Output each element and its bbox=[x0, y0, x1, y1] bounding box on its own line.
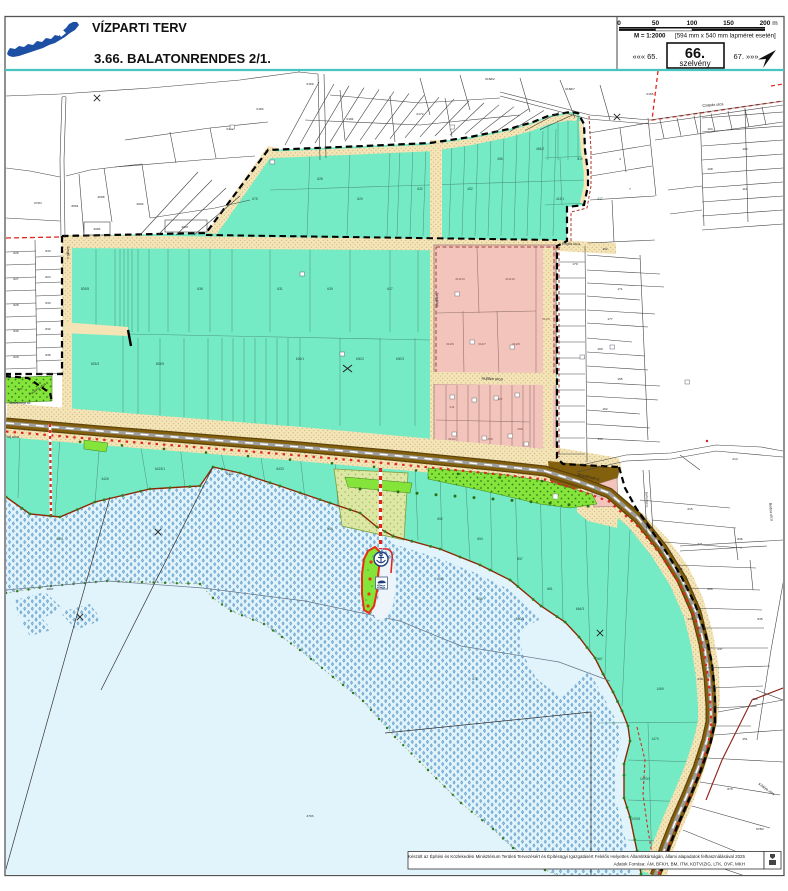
svg-text:298: 298 bbox=[487, 437, 492, 441]
svg-text:Adatok Forrása: ÁM, BFKH, BM,: Adatok Forrása: ÁM, BFKH, BM, ITM, KDTVI… bbox=[614, 861, 745, 867]
svg-text:650: 650 bbox=[437, 577, 443, 581]
svg-text:256: 256 bbox=[697, 757, 702, 761]
svg-text:626/1: 626/1 bbox=[296, 357, 304, 361]
svg-text:312/6: 312/6 bbox=[446, 342, 454, 346]
svg-text:312/2: 312/2 bbox=[448, 437, 456, 441]
svg-text:110: 110 bbox=[743, 187, 748, 191]
svg-text:675: 675 bbox=[252, 197, 258, 201]
svg-text:627: 627 bbox=[387, 287, 393, 291]
svg-text:631: 631 bbox=[277, 287, 283, 291]
svg-text:2098: 2098 bbox=[98, 195, 105, 199]
svg-text:VÍZPARTI TERV: VÍZPARTI TERV bbox=[92, 20, 187, 35]
svg-text:Balatonyi út: Balatonyi út bbox=[10, 400, 32, 405]
svg-text:150: 150 bbox=[723, 20, 734, 27]
svg-text:312/10: 312/10 bbox=[505, 277, 515, 281]
svg-text:661: 661 bbox=[547, 587, 553, 591]
svg-text:szelvény: szelvény bbox=[679, 59, 710, 68]
svg-text:652: 652 bbox=[437, 517, 443, 521]
svg-text:803/3: 803/3 bbox=[91, 362, 99, 366]
svg-text:837: 837 bbox=[17, 387, 22, 391]
svg-text:830: 830 bbox=[13, 329, 18, 333]
svg-text:639: 639 bbox=[327, 287, 333, 291]
svg-text:413/1: 413/1 bbox=[556, 197, 564, 201]
svg-text:803/5: 803/5 bbox=[81, 287, 89, 291]
svg-text:846: 846 bbox=[737, 537, 742, 541]
svg-text:100: 100 bbox=[687, 20, 698, 27]
svg-text:312/8: 312/8 bbox=[512, 342, 520, 346]
svg-text:1470: 1470 bbox=[651, 737, 659, 741]
svg-text:836: 836 bbox=[45, 353, 50, 357]
svg-text:165: 165 bbox=[617, 377, 622, 381]
svg-text:638: 638 bbox=[197, 287, 203, 291]
svg-text:1470/5: 1470/5 bbox=[630, 817, 640, 821]
svg-text:0184: 0184 bbox=[347, 117, 354, 121]
svg-text:312/7: 312/7 bbox=[478, 342, 486, 346]
svg-text:67. »»»: 67. »»» bbox=[733, 52, 758, 61]
svg-text:0168/2: 0168/2 bbox=[485, 77, 495, 81]
svg-text:Szépkilátó: Szépkilátó bbox=[435, 293, 439, 308]
svg-text:878/2: 878/2 bbox=[756, 827, 764, 831]
svg-text:657: 657 bbox=[517, 557, 523, 561]
svg-text:Készült az Építési és Közleked: Készült az Építési és Közlekedési Minisz… bbox=[408, 853, 746, 859]
svg-text:0168/7: 0168/7 bbox=[565, 87, 575, 91]
svg-text:845: 845 bbox=[757, 617, 762, 621]
svg-text:454/2: 454/2 bbox=[536, 147, 544, 151]
svg-text:620: 620 bbox=[357, 197, 363, 201]
svg-text:200: 200 bbox=[760, 20, 771, 27]
svg-text:656: 656 bbox=[477, 597, 483, 601]
svg-text:1470/3: 1470/3 bbox=[640, 777, 650, 781]
svg-text:248: 248 bbox=[697, 677, 702, 681]
svg-text:0: 0 bbox=[617, 20, 621, 27]
svg-text:6423/1: 6423/1 bbox=[155, 467, 165, 471]
svg-text:215: 215 bbox=[687, 507, 692, 511]
svg-text:829: 829 bbox=[13, 355, 18, 359]
svg-text:214: 214 bbox=[732, 457, 737, 461]
svg-text:826: 826 bbox=[13, 251, 18, 255]
svg-text:456: 456 bbox=[497, 157, 503, 161]
svg-text:667: 667 bbox=[597, 657, 603, 661]
svg-text:4697: 4697 bbox=[47, 587, 54, 591]
svg-text:0169: 0169 bbox=[307, 82, 314, 86]
svg-text:[594 mm x 540 mm lapméret eset: [594 mm x 540 mm lapméret esetén] bbox=[675, 33, 776, 40]
svg-text:171: 171 bbox=[617, 287, 622, 291]
svg-text:879: 879 bbox=[727, 787, 732, 791]
svg-text:311: 311 bbox=[450, 405, 455, 409]
svg-text:843: 843 bbox=[45, 249, 50, 253]
svg-text:251: 251 bbox=[742, 737, 747, 741]
svg-text:Hullám utca: Hullám utca bbox=[481, 376, 503, 382]
svg-text:824: 824 bbox=[45, 275, 50, 279]
svg-text:160: 160 bbox=[597, 347, 602, 351]
svg-text:Szegfű u.: Szegfű u. bbox=[66, 246, 70, 260]
svg-text:671: 671 bbox=[472, 677, 478, 681]
svg-text:Regős utca: Regős utca bbox=[562, 242, 580, 246]
svg-text:7: 7 bbox=[629, 187, 631, 191]
svg-text:828: 828 bbox=[13, 303, 18, 307]
svg-text:630/2: 630/2 bbox=[356, 357, 364, 361]
svg-text:664/3: 664/3 bbox=[576, 607, 584, 611]
svg-text:4426: 4426 bbox=[101, 477, 109, 481]
svg-text:50: 50 bbox=[652, 20, 660, 27]
svg-text:2097: 2097 bbox=[182, 225, 189, 229]
svg-text:0166: 0166 bbox=[647, 92, 654, 96]
svg-text:6491: 6491 bbox=[56, 537, 64, 541]
svg-text:Fürj utca: Fürj utca bbox=[5, 435, 19, 439]
svg-text:0172: 0172 bbox=[417, 112, 424, 116]
svg-text:452: 452 bbox=[467, 187, 473, 191]
svg-text:106: 106 bbox=[742, 147, 747, 151]
svg-text:296: 296 bbox=[517, 427, 522, 431]
svg-text:646: 646 bbox=[327, 527, 333, 531]
svg-text:m: m bbox=[772, 20, 777, 27]
svg-text:225: 225 bbox=[677, 567, 682, 571]
svg-text:307: 307 bbox=[497, 397, 502, 401]
svg-text:417: 417 bbox=[597, 197, 603, 201]
svg-text:104: 104 bbox=[707, 127, 712, 131]
svg-text:177: 177 bbox=[607, 317, 612, 321]
svg-text:312/13: 312/13 bbox=[455, 277, 465, 281]
svg-text:4: 4 bbox=[619, 157, 621, 161]
svg-text:833: 833 bbox=[45, 301, 50, 305]
svg-text:134: 134 bbox=[597, 437, 602, 441]
svg-text:419: 419 bbox=[577, 157, 583, 161]
svg-text:654: 654 bbox=[477, 537, 483, 541]
svg-text:4703: 4703 bbox=[307, 814, 314, 818]
svg-text:««« 65.: ««« 65. bbox=[632, 52, 657, 61]
svg-text:632: 632 bbox=[417, 187, 423, 191]
svg-text:6433: 6433 bbox=[276, 467, 284, 471]
svg-text:1469: 1469 bbox=[656, 687, 664, 691]
svg-text:2084: 2084 bbox=[94, 227, 101, 231]
svg-text:247: 247 bbox=[717, 647, 722, 651]
svg-text:312/9: 312/9 bbox=[542, 317, 550, 321]
svg-text:827: 827 bbox=[13, 277, 18, 281]
svg-text:803/9: 803/9 bbox=[156, 362, 164, 366]
svg-text:6431: 6431 bbox=[226, 472, 234, 476]
svg-text:152: 152 bbox=[602, 247, 607, 251]
svg-text:630/3: 630/3 bbox=[396, 357, 404, 361]
svg-text:108: 108 bbox=[707, 167, 712, 171]
svg-text:M = 1:2000: M = 1:2000 bbox=[634, 33, 666, 40]
svg-text:628: 628 bbox=[317, 177, 323, 181]
svg-text:8081: 8081 bbox=[72, 204, 79, 208]
svg-text:221: 221 bbox=[697, 542, 702, 546]
svg-text:832: 832 bbox=[45, 327, 50, 331]
svg-text:070/1: 070/1 bbox=[34, 201, 42, 205]
svg-text:170: 170 bbox=[572, 262, 577, 266]
svg-text:0183: 0183 bbox=[257, 107, 264, 111]
svg-text:162: 162 bbox=[602, 407, 607, 411]
svg-text:2092: 2092 bbox=[137, 202, 144, 206]
svg-text:250: 250 bbox=[752, 697, 757, 701]
svg-text:246: 246 bbox=[687, 617, 692, 621]
svg-text:266: 266 bbox=[707, 587, 712, 591]
svg-text:660/3: 660/3 bbox=[516, 617, 524, 621]
svg-text:3.66. BALATONRENDES 2/1.: 3.66. BALATONRENDES 2/1. bbox=[94, 51, 271, 66]
